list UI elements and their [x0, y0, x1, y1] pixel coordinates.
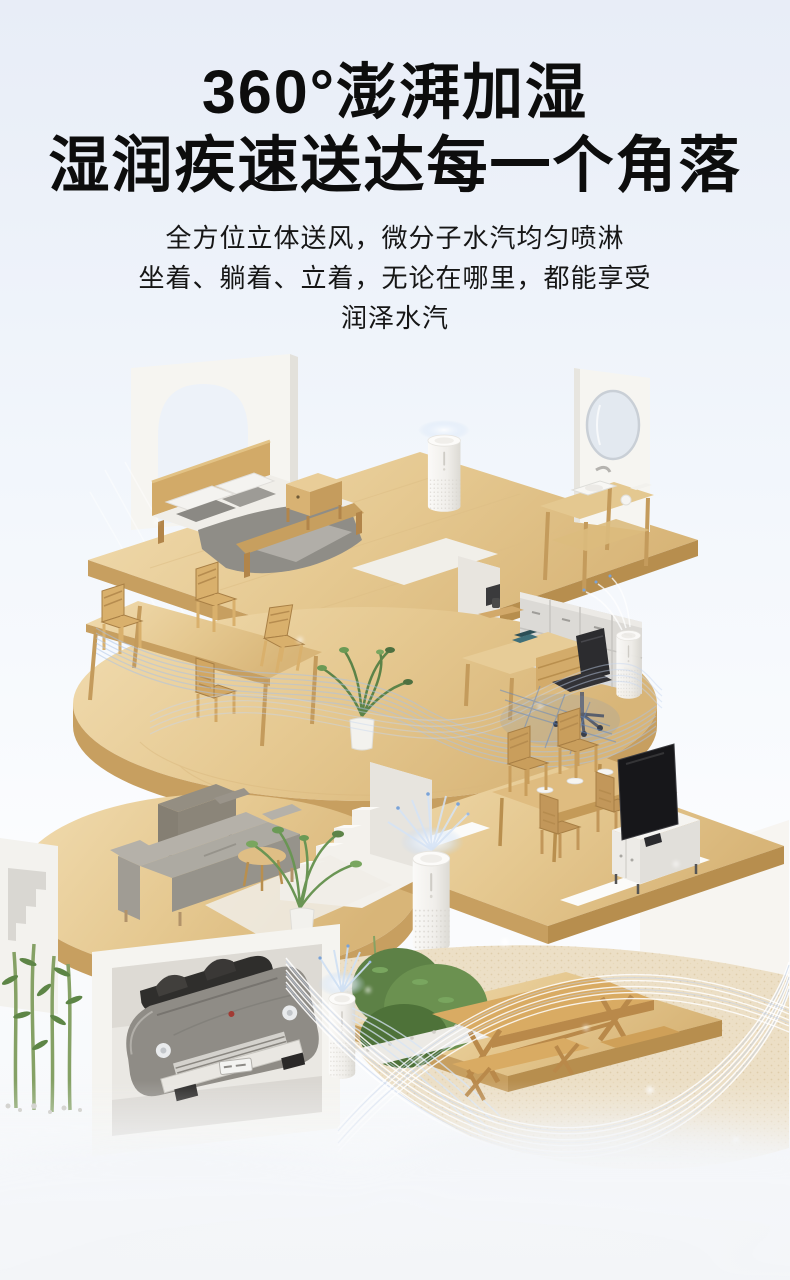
towel [621, 495, 631, 505]
subtitle-line-2: 坐着、躺着、立着，无论在哪里，都能享受 [0, 258, 790, 298]
round-mirror [587, 391, 639, 459]
title-line-2: 湿润疾速送达每一个角落 [0, 129, 790, 202]
promo-page: 360°澎湃加湿 湿润疾速送达每一个角落 全方位立体送风，微分子水汽均匀喷淋 坐… [0, 0, 790, 1280]
hero-copy: 360°澎湃加湿 湿润疾速送达每一个角落 全方位立体送风，微分子水汽均匀喷淋 坐… [0, 0, 790, 338]
subtitle-line-3: 润泽水汽 [0, 298, 790, 338]
title-line-1: 360°澎湃加湿 [0, 56, 790, 129]
page-title: 360°澎湃加湿 湿润疾速送达每一个角落 [0, 56, 790, 202]
subtitle-line-1: 全方位立体送风，微分子水汽均匀喷淋 [0, 218, 790, 258]
page-subtitle: 全方位立体送风，微分子水汽均匀喷淋 坐着、躺着、立着，无论在哪里，都能享受 润泽… [0, 218, 790, 338]
bottom-fade [0, 1080, 790, 1280]
